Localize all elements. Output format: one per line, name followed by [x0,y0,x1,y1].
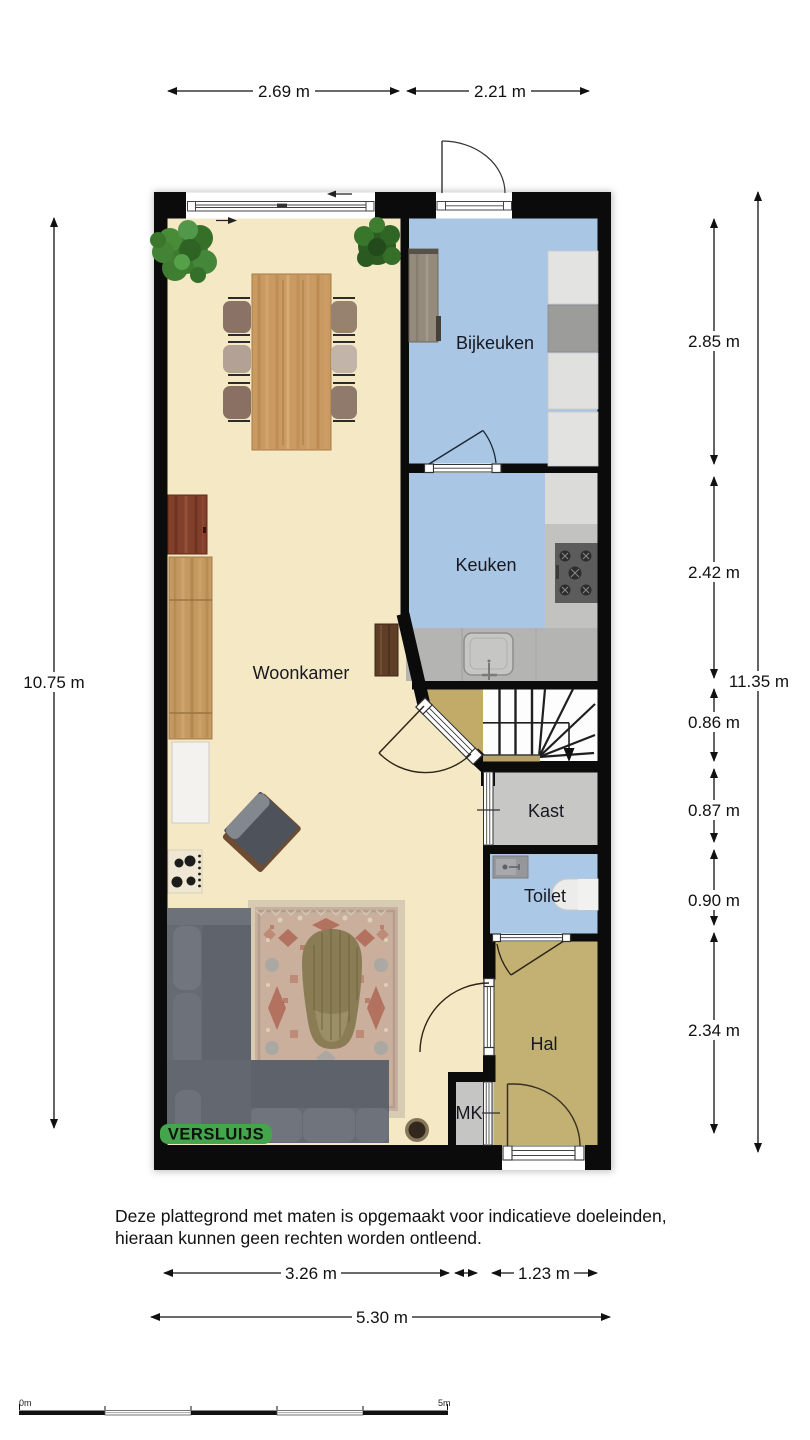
svg-text:Toilet: Toilet [524,886,566,906]
svg-text:10.75 m: 10.75 m [23,673,84,692]
svg-text:Woonkamer: Woonkamer [253,663,350,683]
svg-text:Bijkeuken: Bijkeuken [456,333,534,353]
svg-text:MK: MK [456,1103,483,1123]
svg-text:2.34 m: 2.34 m [688,1021,740,1040]
svg-text:0.87 m: 0.87 m [688,801,740,820]
svg-text:2.21 m: 2.21 m [474,82,526,101]
svg-text:11.35 m: 11.35 m [729,672,789,691]
svg-text:hieraan kunnen geen rechten wo: hieraan kunnen geen rechten worden ontle… [115,1228,482,1248]
svg-text:5.30 m: 5.30 m [356,1308,408,1327]
svg-text:0.86 m: 0.86 m [688,713,740,732]
svg-text:2.85 m: 2.85 m [688,332,740,351]
svg-text:Deze plattegrond met maten is: Deze plattegrond met maten is opgemaakt … [115,1206,667,1226]
svg-text:0.90 m: 0.90 m [688,891,740,910]
svg-text:Hal: Hal [530,1034,557,1054]
svg-text:2.42 m: 2.42 m [688,563,740,582]
svg-text:VERSLUIJS: VERSLUIJS [168,1126,264,1144]
svg-text:1.23 m: 1.23 m [518,1264,570,1283]
svg-text:Kast: Kast [528,801,564,821]
svg-text:2.69 m: 2.69 m [258,82,310,101]
svg-text:3.26 m: 3.26 m [285,1264,337,1283]
svg-text:0m: 0m [19,1398,32,1408]
svg-text:Keuken: Keuken [455,555,516,575]
svg-text:5m: 5m [438,1398,451,1408]
